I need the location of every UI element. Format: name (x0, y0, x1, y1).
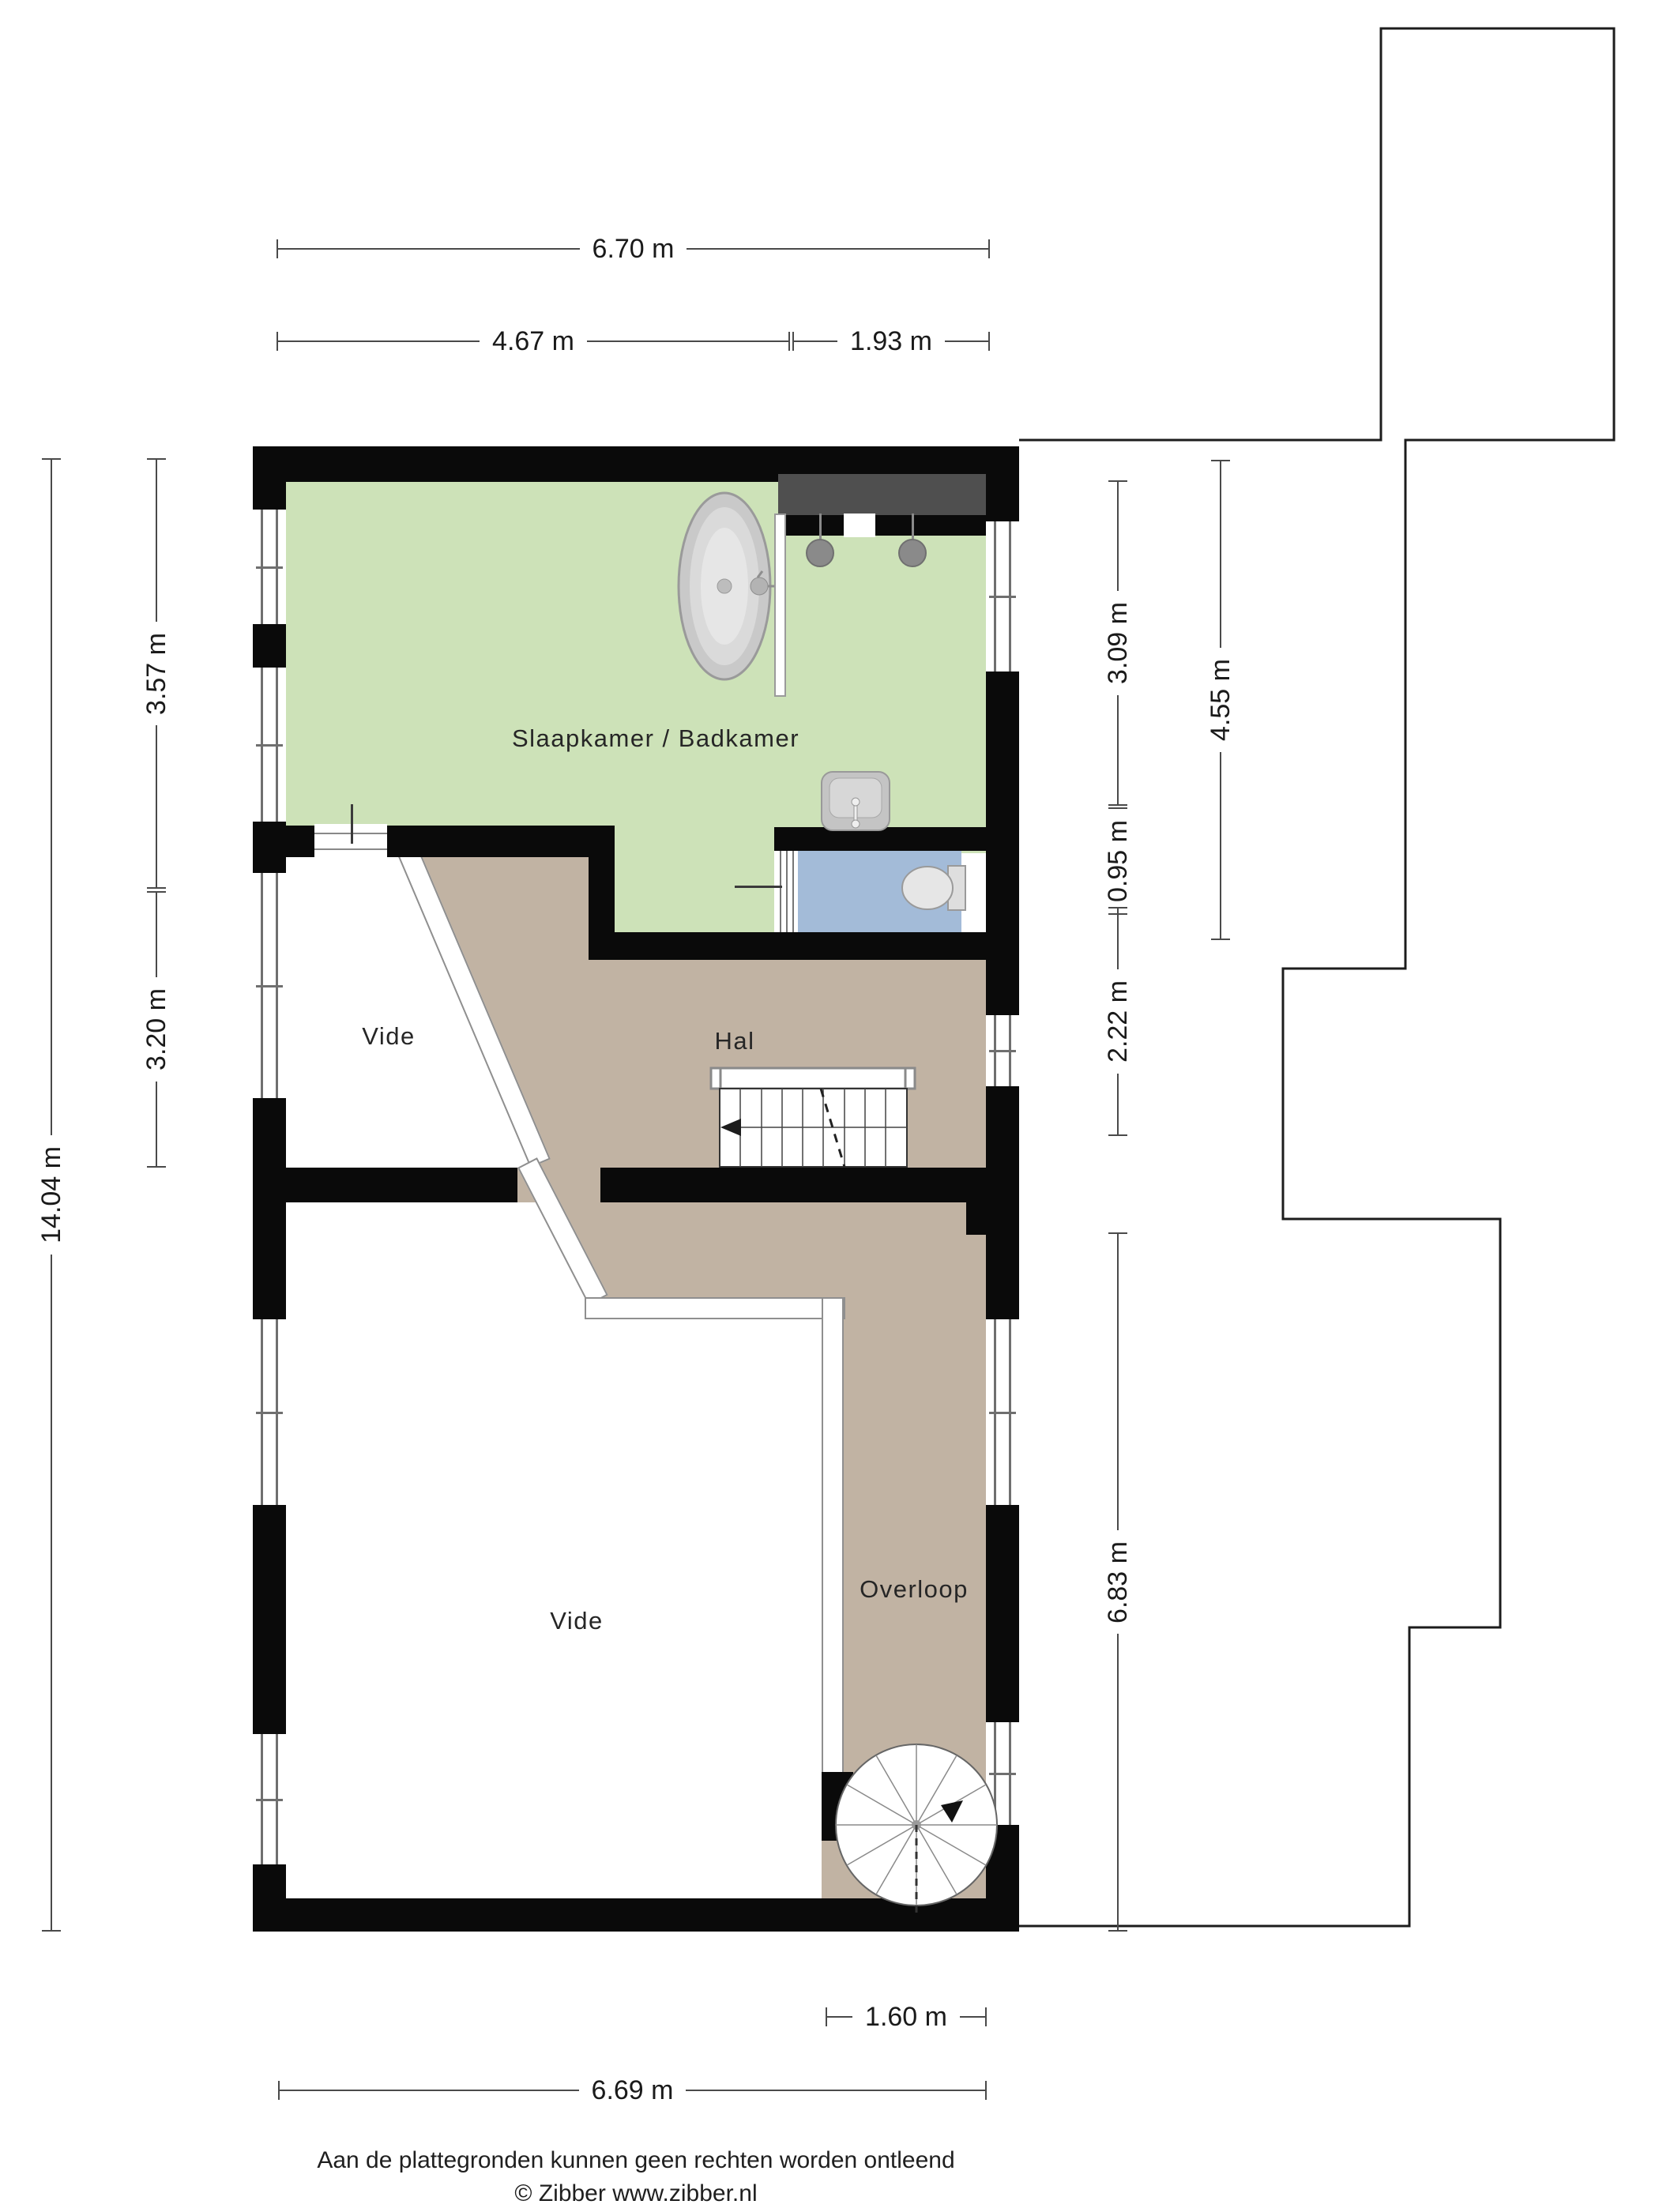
closet-front-wall (778, 515, 986, 536)
shower-head-icon-2 (898, 539, 927, 567)
closet-icon (778, 474, 986, 520)
vide-railing-horizontal (585, 1297, 845, 1319)
dim-right-overloop: 6.83 m (1102, 1232, 1134, 1932)
dim-right-bath: 3.09 m (1102, 480, 1134, 806)
window-left-5 (253, 1734, 286, 1864)
dim-left-upper: 3.57 m (141, 458, 172, 889)
bedroom-door-tick (351, 804, 353, 844)
wall-corridor-step (966, 1168, 992, 1235)
label-vide-upper: Vide (362, 1022, 416, 1051)
vide-railing-vertical (822, 1297, 844, 1803)
wc-door-left (774, 851, 798, 932)
dim-width-left: 4.67 m (276, 325, 790, 357)
floorplan-page: Slaapkamer / Badkamer Vide Hal Vide Over… (0, 0, 1659, 2212)
shower-stem-2 (912, 513, 914, 542)
dim-right-wc: 0.95 m (1102, 807, 1134, 905)
shower-head-icon-1 (806, 539, 834, 567)
label-overloop: Overloop (860, 1575, 969, 1604)
shower-screen (774, 513, 786, 697)
dim-left-lower: 3.20 m (141, 891, 172, 1168)
window-left-2 (253, 668, 286, 822)
dim-width-total: 6.70 m (276, 233, 990, 265)
label-hal: Hal (714, 1027, 754, 1055)
window-left-4 (253, 1319, 286, 1505)
footer-credit: © Zibber www.zibber.nl (514, 2180, 757, 2207)
footer-disclaimer: Aan de plattegronden kunnen geen rechten… (317, 2147, 954, 2174)
dim-width-right: 1.93 m (792, 325, 990, 357)
dim-bottom-small: 1.60 m (826, 2001, 987, 2033)
window-right-3 (986, 1319, 1019, 1505)
window-left-1 (253, 510, 286, 624)
toilet-icon (901, 863, 968, 914)
label-vide-lower: Vide (550, 1607, 604, 1635)
window-right-1 (986, 521, 1019, 671)
wall-mid-right (600, 1168, 968, 1202)
wall-mid-left (253, 1168, 517, 1202)
shower-stem-1 (819, 513, 822, 542)
bathtub-icon (675, 490, 774, 683)
dim-height-total: 14.04 m (36, 458, 67, 1932)
label-bedroom: Slaapkamer / Badkamer (512, 724, 799, 753)
wall-bedroom-vertical (589, 826, 615, 936)
stairs-icon (709, 1066, 916, 1171)
sink-icon (820, 770, 891, 832)
window-right-2 (986, 1015, 1019, 1086)
dim-right-outer: 4.55 m (1205, 460, 1236, 940)
dim-bottom-total: 6.69 m (278, 2075, 987, 2106)
window-left-3 (253, 873, 286, 1098)
wall-bedroom-bottom-right (589, 932, 986, 960)
closet-door (844, 513, 875, 537)
spiral-stairs-icon (826, 1734, 1007, 1916)
dim-right-hal: 2.22 m (1102, 907, 1134, 1136)
wc-door-tick (735, 886, 782, 888)
